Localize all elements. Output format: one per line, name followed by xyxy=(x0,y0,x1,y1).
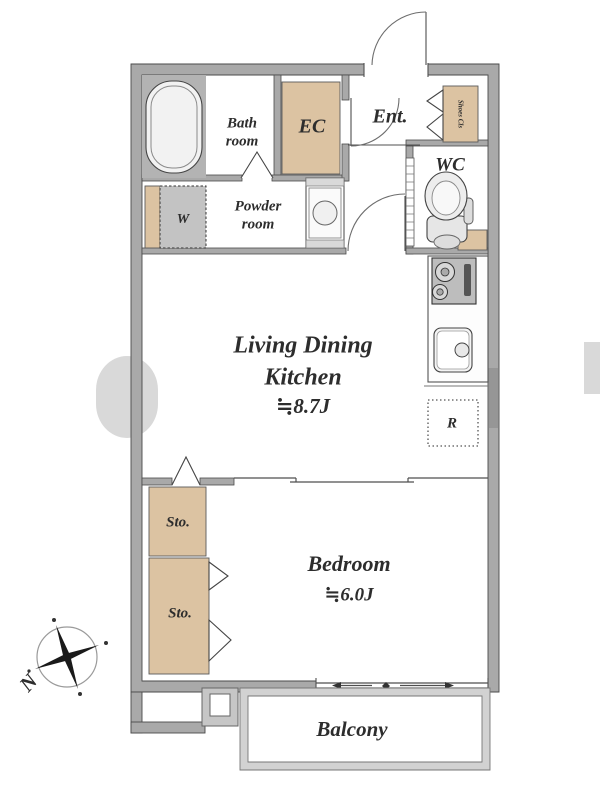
wall-ec-ent-top xyxy=(342,75,349,100)
wall-bath-ec xyxy=(274,75,281,178)
watermark-blob xyxy=(96,356,158,438)
wc-accordion-door xyxy=(406,158,414,246)
floor-plan: Bath room EC Ent. Shoes Cls WC xyxy=(0,0,600,800)
front-door-opening xyxy=(364,63,428,77)
stove-burner-center xyxy=(441,268,449,276)
bedroom-area-label: ≒6.0J xyxy=(324,584,374,605)
washbasin-icon xyxy=(306,178,344,248)
balcony-label: Balcony xyxy=(315,717,388,741)
watermark-on-wall xyxy=(488,368,499,428)
bedroom-label: Bedroom xyxy=(306,551,390,576)
storage1-label: Sto. xyxy=(166,514,190,530)
washer-label: W xyxy=(177,212,191,227)
washbasin-sink xyxy=(313,201,337,225)
powder-room-label: room xyxy=(242,216,275,232)
toilet-base xyxy=(434,235,460,249)
wall-ldk-bedroom-left xyxy=(142,478,172,485)
washer-pan-strip xyxy=(145,186,160,248)
refrigerator-label: R xyxy=(446,415,457,431)
ec-label: EC xyxy=(298,116,326,138)
wall-ldk-bedroom-stub xyxy=(200,478,234,485)
bathroom-label: Bath xyxy=(226,115,257,131)
compass-tip-dot xyxy=(78,692,82,696)
powder-room-label: Powder xyxy=(235,198,282,214)
ldk-area-label: ≒8.7J xyxy=(276,394,332,418)
entrance-label: Ent. xyxy=(371,106,407,128)
storage2-label: Sto. xyxy=(168,605,192,621)
bathroom-label: room xyxy=(226,133,259,149)
entrance: Ent. xyxy=(371,106,407,128)
shoe-closet-label: Shoes Cls xyxy=(456,100,464,128)
sink-faucet xyxy=(455,343,469,357)
toilet-bowl-inner xyxy=(432,181,460,215)
compass-tip-dot xyxy=(104,641,108,645)
wall-ec-ent-bottom xyxy=(342,144,349,181)
ldk-label: Kitchen xyxy=(263,365,341,391)
ldk-label: Living Dining xyxy=(232,333,372,359)
meter-box-inner xyxy=(210,694,230,716)
stove-burner-center xyxy=(437,289,443,295)
wall-extension-bottom xyxy=(131,722,205,733)
watermark-blob xyxy=(584,342,600,394)
washbasin-top-edge xyxy=(306,178,344,186)
kitchen-sink-icon xyxy=(434,328,472,372)
wall-powder-ldk xyxy=(142,248,346,254)
washbasin-bottom-edge xyxy=(306,240,344,248)
compass-tip-dot xyxy=(52,618,56,622)
stove-icon xyxy=(432,258,476,304)
stove-grill xyxy=(464,264,471,296)
